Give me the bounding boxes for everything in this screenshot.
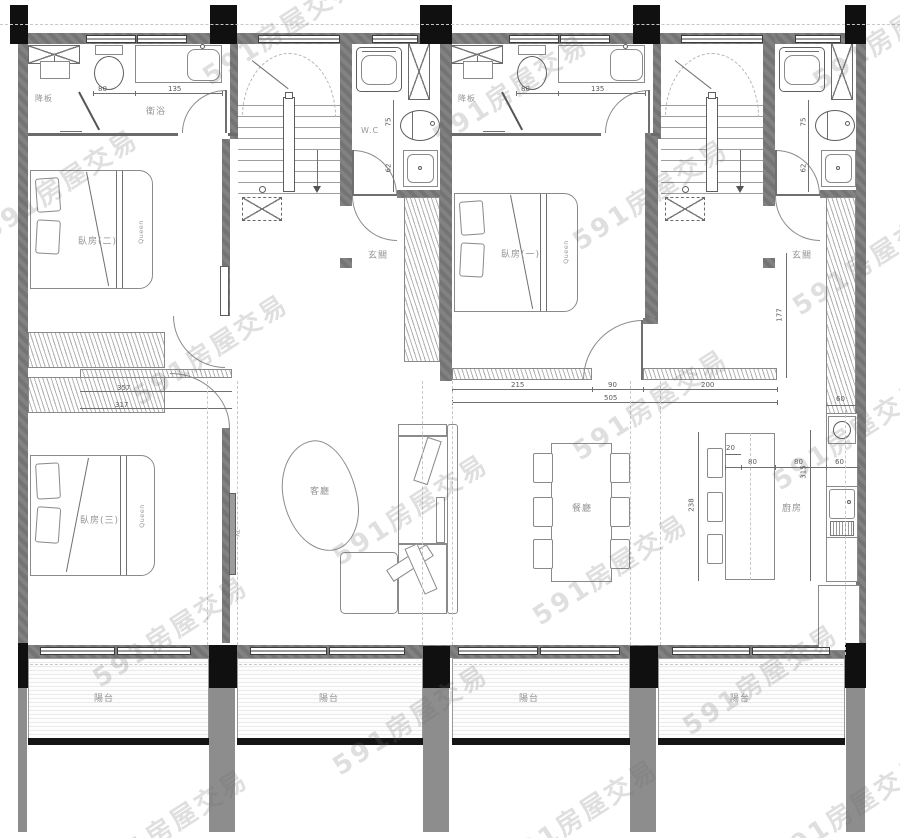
bed-foot-line — [540, 194, 541, 311]
kitchen-sink-basin — [829, 489, 855, 519]
dim-counter-60: 60 — [836, 395, 845, 403]
tick — [858, 465, 859, 470]
tick — [777, 400, 778, 405]
label-foyer-left: 玄關 — [368, 251, 388, 261]
bed-foot-line — [546, 194, 547, 311]
stairs-arrow-head-right — [736, 186, 744, 193]
small-sink-left — [40, 61, 70, 79]
kitchen-drain-grill — [830, 521, 854, 536]
dropslab-door-line-right — [483, 131, 505, 132]
bath-door-arc-right — [605, 90, 649, 133]
wc-door-arc-right — [776, 150, 820, 195]
dim-run-215: 215 — [511, 381, 524, 389]
window — [372, 35, 418, 43]
wall-stair-wc-right — [763, 33, 775, 196]
dim-wc-left-62: 62 — [384, 164, 392, 173]
washer-slot-right — [785, 51, 819, 52]
stairs-rail-left — [283, 97, 295, 192]
toilet-tank-left — [95, 45, 123, 55]
wc-toilet-button-right — [845, 121, 850, 126]
window — [795, 35, 841, 43]
faucet-small-sink-left — [54, 56, 55, 62]
dim-foyer-177: 177 — [776, 308, 784, 321]
dim-line-closet-b — [80, 408, 232, 409]
tick — [558, 91, 559, 96]
wall-stub-entry-right-b — [763, 258, 775, 268]
bed-foot-line — [122, 171, 123, 288]
tick — [93, 91, 94, 96]
bed-foot-line — [120, 456, 121, 575]
wc-sink-faucet-right — [836, 166, 840, 170]
bath-door-arc-left — [182, 90, 226, 133]
window — [681, 35, 763, 43]
wall-stub-entry-right-a — [763, 196, 775, 206]
label-foyer-right: 玄關 — [792, 251, 812, 261]
floor-plan: 衛浴 降板 降板 W.C 玄關 玄關 臥房(二) 臥房(一) 臥房(三) 客廳 … — [0, 0, 900, 838]
label-balcony-2: 陽台 — [319, 694, 339, 704]
dining-chair — [610, 453, 630, 483]
pillow — [35, 462, 61, 499]
bedroom2-door-panel — [220, 266, 229, 316]
kitchen-stool — [707, 534, 723, 564]
dim-bath-left-135: 135 — [168, 85, 181, 93]
label-queen-bedroom1: Queen — [562, 240, 570, 264]
dim-bath-left-80: 80 — [98, 85, 107, 93]
bath-door-leaf-right — [648, 90, 650, 133]
dropslab-door-leaf-left — [78, 92, 100, 131]
label-balcony-3: 陽台 — [519, 694, 539, 704]
bed-foot-line — [126, 456, 127, 575]
pillow — [459, 242, 485, 277]
window — [458, 647, 538, 655]
kitchen-stool — [707, 492, 723, 522]
tick — [222, 91, 223, 96]
window — [329, 647, 405, 655]
label-dining: 餐廳 — [572, 504, 592, 514]
stairs-arrow-line-left — [317, 150, 318, 187]
vanity-faucet-right — [623, 44, 628, 49]
label-bath-left: 衛浴 — [146, 107, 166, 117]
column — [209, 645, 237, 688]
kitchen-faucet — [847, 500, 851, 504]
pillow — [35, 506, 61, 544]
dining-chair — [533, 497, 553, 527]
wc-toilet-line-right — [827, 112, 828, 139]
property-line — [0, 24, 900, 25]
cabinet-foyer-left — [404, 197, 440, 362]
wall-stub-bedroom1 — [643, 318, 658, 324]
tick — [135, 91, 136, 96]
window — [540, 647, 620, 655]
tick — [725, 465, 726, 470]
label-dropslab-left: 降板 — [35, 94, 53, 104]
balcony-dashed-line — [239, 664, 421, 665]
watermark: 591房屋交易 — [764, 744, 900, 838]
label-bedroom1: 臥房(一) — [501, 250, 540, 260]
faucet-small-sink-right — [477, 56, 478, 62]
bedroom1-door-leaf — [641, 320, 643, 380]
label-bedroom3: 臥房(三) — [80, 516, 119, 526]
wall-bedroom1-stair — [645, 133, 658, 323]
stairs-arrow-line-right — [740, 150, 741, 187]
stairs-newel-left — [259, 186, 266, 193]
wall-party — [440, 33, 452, 381]
dim-wc-right-62: 62 — [799, 164, 807, 173]
label-kitchen: 廚房 — [782, 504, 802, 514]
wc-sink-faucet-left — [418, 166, 422, 170]
closet-bedroom2 — [28, 332, 165, 368]
label-queen-bedroom2: Queen — [137, 220, 145, 244]
column-leg — [18, 688, 27, 832]
grid-dashed-line — [452, 381, 453, 645]
window — [137, 35, 187, 43]
dim-closet-317: 317 — [115, 401, 128, 409]
dim-run-90: 90 — [608, 381, 617, 389]
grid-dashed-line — [750, 433, 751, 580]
vanity-faucet-left — [200, 44, 205, 49]
bed-foot-line — [116, 171, 117, 288]
kitchen-stool — [707, 448, 723, 478]
balcony-edge-3 — [452, 738, 630, 745]
cabinet-bedroom1-low-a — [452, 368, 592, 380]
label-wc-left: W.C — [361, 126, 379, 136]
partition-bath-right-b — [651, 133, 660, 136]
dim-kitchen-20: 20 — [726, 444, 735, 452]
label-balcony-1: 陽台 — [94, 694, 114, 704]
wc-toilet-line-left — [412, 112, 413, 139]
pillow — [459, 200, 485, 236]
column — [630, 646, 658, 688]
tick — [592, 387, 593, 392]
balcony-edge-4 — [658, 738, 845, 745]
dim-dining-238: 238 — [688, 498, 696, 511]
dropslab-door-line-left — [60, 131, 82, 132]
entry-door-arc-right — [775, 196, 820, 241]
vanity-basin-right — [610, 49, 643, 81]
washer-drum-left — [361, 55, 397, 85]
dim-line-run-a — [452, 389, 777, 390]
tick — [645, 91, 646, 96]
stairs-arrow-head-left — [313, 186, 321, 193]
wall-stub-entry-left-b — [340, 258, 352, 268]
wall-exterior-left — [18, 33, 28, 658]
label-bedroom2: 臥房(二) — [78, 237, 117, 247]
label-living: 客廳 — [310, 487, 330, 497]
dim-line-wc-left — [393, 100, 394, 192]
stairs-rail-cap-left — [285, 92, 293, 99]
cabinet-x-left — [408, 43, 430, 100]
dim-bath-right-135: 135 — [591, 85, 604, 93]
dim-line-kitchen-20 — [725, 454, 741, 455]
column — [18, 643, 28, 688]
dining-chair — [533, 539, 553, 569]
small-sink-right — [463, 61, 493, 79]
tick — [777, 387, 778, 392]
dining-chair — [610, 497, 630, 527]
wall-bath-stair-right — [653, 43, 661, 139]
dim-wc-right-75: 75 — [799, 118, 807, 127]
label-queen-bedroom3: Queen — [138, 504, 146, 528]
washer-slot-left — [362, 51, 396, 52]
bath-door-leaf-left — [225, 90, 227, 133]
dim-line-bath-left — [93, 93, 222, 94]
balcony-edge-1 — [28, 738, 209, 745]
wall-stub-entry-left-a — [340, 196, 352, 206]
pillow — [35, 219, 61, 254]
window — [250, 647, 327, 655]
wc-door-leaf-left — [352, 150, 354, 195]
entry-door-arc-left — [352, 196, 397, 241]
dim-line-foyer-right — [786, 253, 787, 378]
partition-bath-left-b — [228, 133, 238, 136]
dim-run-505: 505 — [604, 394, 617, 402]
dim-line-dining — [698, 432, 699, 581]
shaft-under-stairs-left — [242, 197, 282, 221]
window — [86, 35, 136, 43]
tick — [741, 465, 742, 470]
dim-wc-left-75: 75 — [384, 118, 392, 127]
wc-door-arc-left — [353, 150, 397, 195]
cabinet-foyer-right — [826, 197, 856, 415]
dim-line-counter-top — [826, 405, 858, 406]
column — [845, 643, 866, 688]
stairs-rail-cap-right — [708, 92, 716, 99]
bedroom1-door-arc — [583, 320, 643, 380]
window — [672, 647, 750, 655]
wall-stair-wc-left — [340, 33, 352, 196]
dim-line-wc-right — [808, 100, 809, 192]
wc-door-leaf-right — [775, 150, 777, 195]
dining-chair — [533, 453, 553, 483]
